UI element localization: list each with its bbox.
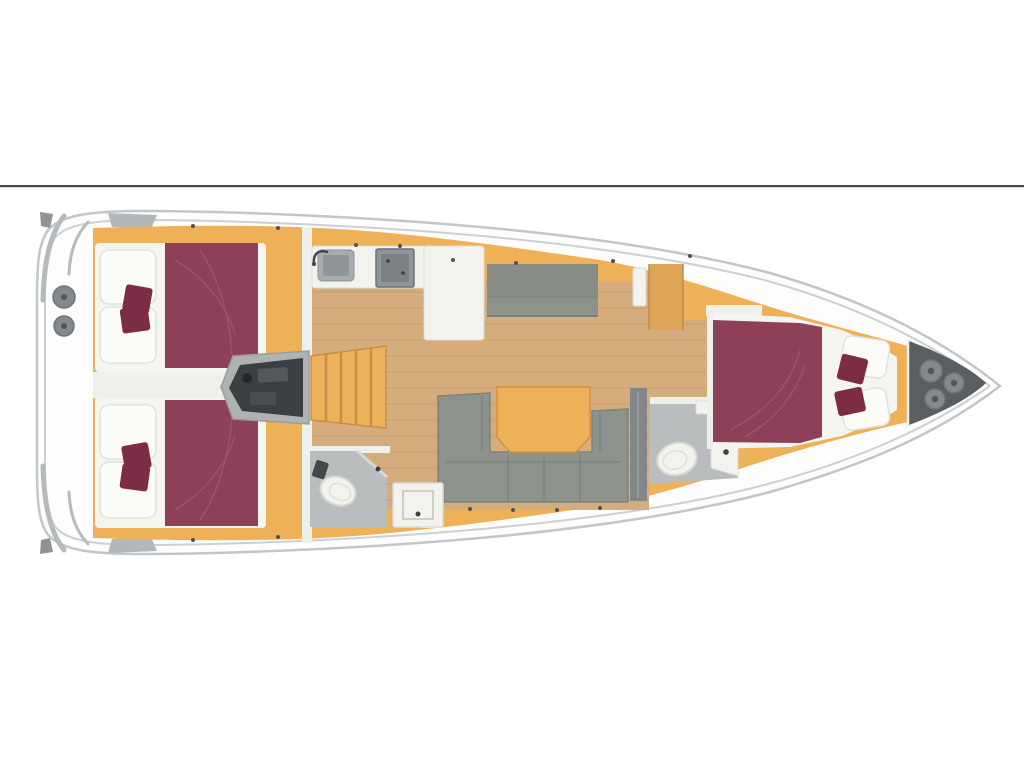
aft-cabin-port	[95, 243, 266, 372]
latch-dot	[598, 506, 602, 510]
latch-dot	[555, 508, 559, 512]
latch-dot	[511, 508, 515, 512]
latch-dot	[354, 243, 358, 247]
stern-hatch-icon	[53, 286, 75, 308]
wardrobe-door	[649, 264, 683, 330]
locker-door	[633, 268, 646, 306]
salon-table	[497, 387, 590, 452]
latch-dot	[191, 224, 195, 228]
companionway-stairs	[311, 346, 386, 428]
door-handle-dot	[376, 467, 381, 472]
engine-detail	[250, 392, 276, 405]
stove-top	[381, 254, 409, 282]
stove-burner	[386, 259, 390, 263]
faucet-base	[312, 262, 316, 266]
stairs-body	[311, 346, 386, 428]
galley-sink-basin	[323, 255, 349, 276]
latch-dot	[451, 258, 455, 262]
shower-tray	[393, 483, 443, 527]
bow-hatch-icon	[920, 360, 942, 382]
latch-dot	[611, 259, 615, 263]
stern-hatch-icon	[54, 316, 74, 336]
bed-foot-wall	[707, 313, 713, 449]
drain-dot	[416, 512, 421, 517]
settee-seat	[487, 296, 598, 317]
latch-dot	[276, 535, 280, 539]
engine-detail	[258, 367, 289, 383]
bed-mattress	[713, 320, 822, 443]
latch-dot	[688, 254, 692, 258]
yacht-floorplan-image	[0, 0, 1024, 768]
stove-burner	[401, 271, 405, 275]
page-divider-line	[0, 185, 1024, 187]
settee	[487, 264, 598, 317]
latch-dot	[191, 538, 195, 542]
accent-cushion	[119, 463, 150, 492]
vanity-knob	[723, 449, 729, 455]
engine-detail	[242, 373, 252, 383]
latch-dot	[468, 507, 472, 511]
settee-backrest	[487, 264, 598, 298]
latch-dot	[276, 226, 280, 230]
bow-hatch-icon	[925, 389, 945, 409]
latch-dot	[514, 261, 518, 265]
engine-compartment	[221, 351, 309, 424]
latch-dot	[398, 244, 402, 248]
screenshot-canvas	[0, 0, 1024, 768]
stern-notch-bottom	[40, 538, 53, 554]
accent-cushion	[119, 305, 150, 334]
bow-hatch-icon	[944, 373, 964, 393]
